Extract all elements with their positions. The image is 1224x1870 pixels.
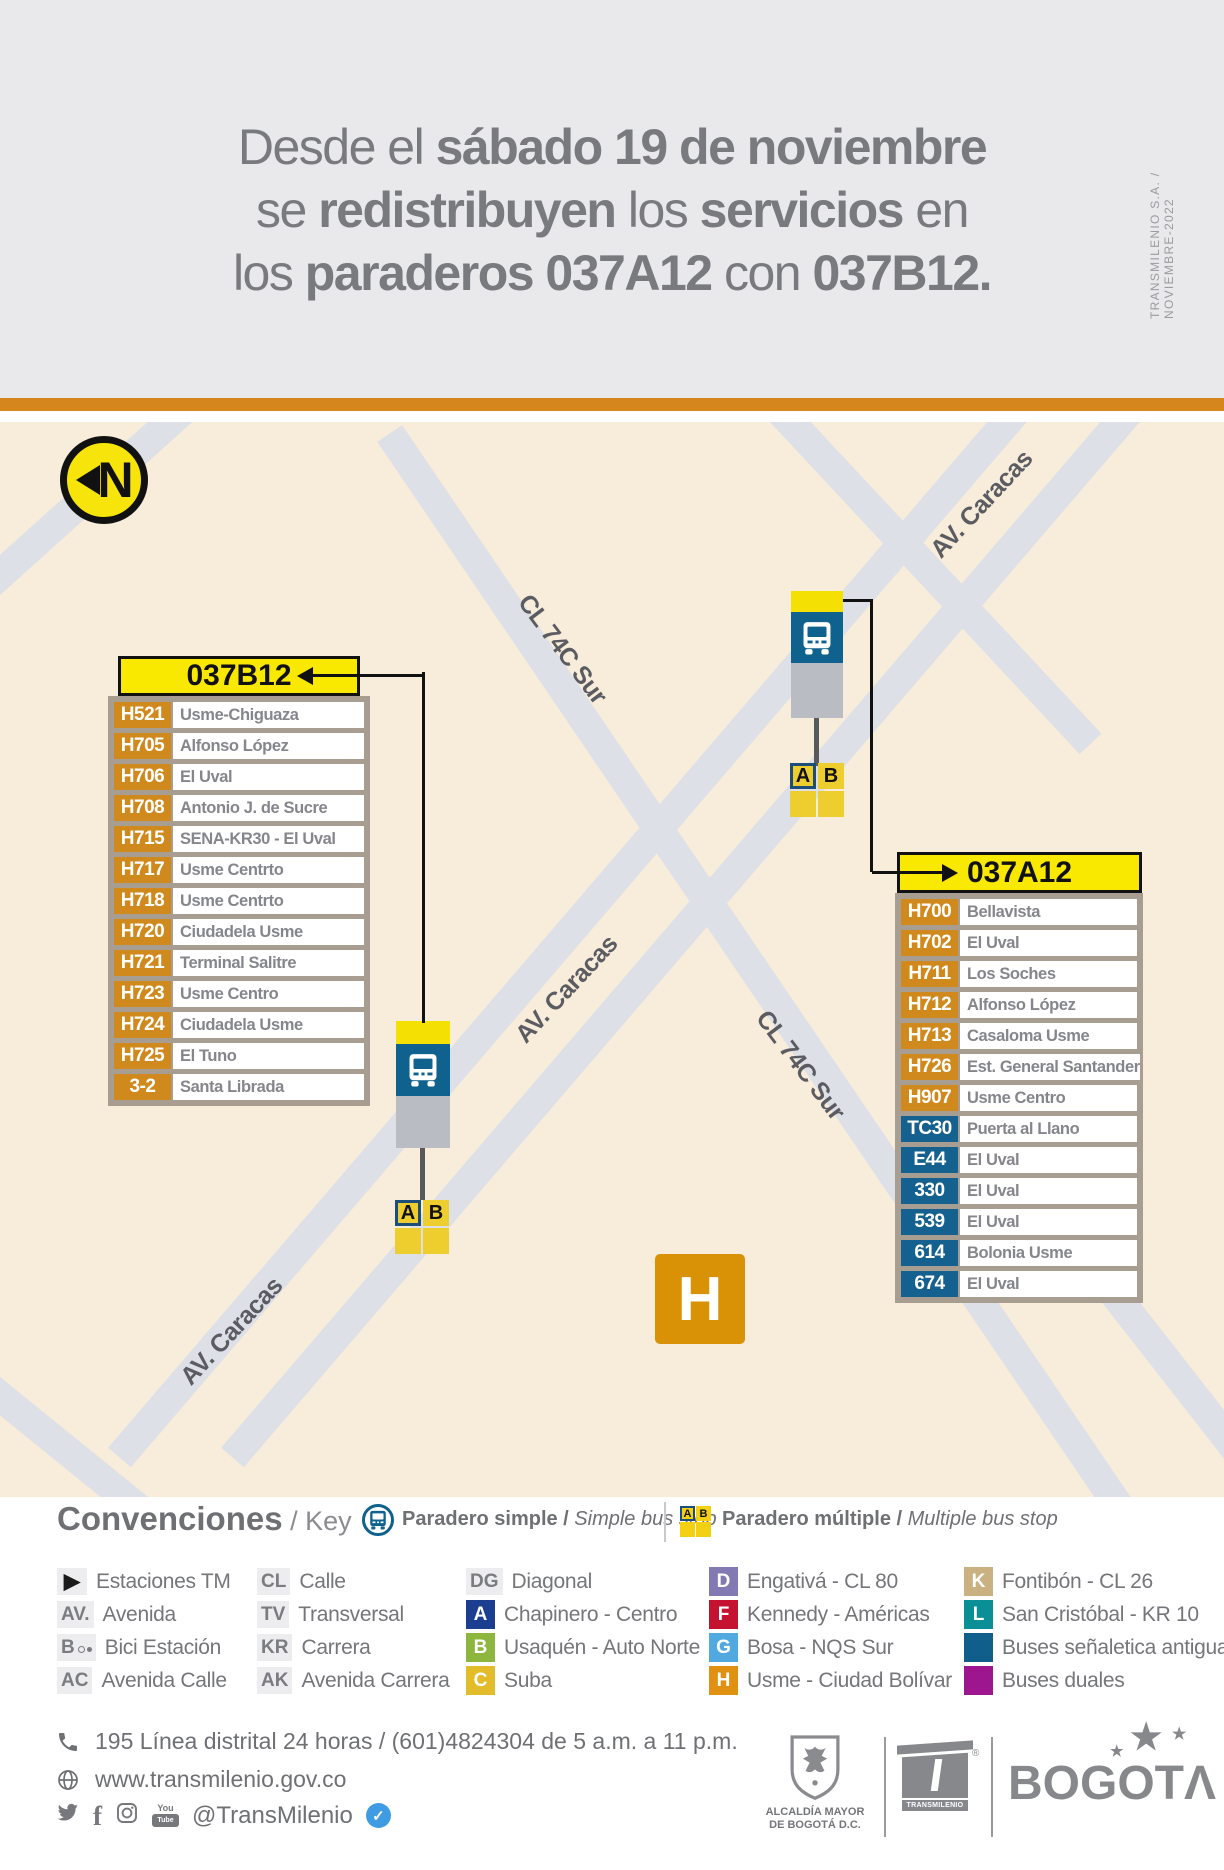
route-row: H702 El Uval bbox=[901, 930, 1137, 956]
legend-label: Kennedy - Américas bbox=[747, 1603, 930, 1627]
route-destination: Casaloma Usme bbox=[960, 1023, 1137, 1049]
legend-chip: AK bbox=[257, 1667, 292, 1694]
legend-title-key: / Key bbox=[283, 1506, 352, 1536]
route-destination: Usme Centro bbox=[960, 1085, 1137, 1111]
legend-item: ▶ Estaciones TM bbox=[57, 1565, 231, 1598]
route-row: H725 El Tuno bbox=[114, 1043, 364, 1069]
website-row: www.transmilenio.gov.co bbox=[55, 1766, 346, 1793]
legend-chip bbox=[964, 1666, 993, 1695]
legend-chip bbox=[964, 1633, 993, 1662]
connector-line bbox=[422, 672, 425, 1023]
mini-cell bbox=[680, 1522, 695, 1537]
caption-bold: Paradero múltiple / bbox=[722, 1508, 908, 1530]
route-code-badge: H706 bbox=[114, 764, 171, 790]
legend-item: C Suba bbox=[466, 1664, 700, 1697]
legend-label: Engativá - CL 80 bbox=[747, 1570, 898, 1594]
legend-label: Estaciones TM bbox=[96, 1570, 231, 1594]
platform-b-cell: B bbox=[423, 1200, 449, 1226]
route-code-badge: H712 bbox=[901, 992, 958, 1018]
route-code-badge: 614 bbox=[901, 1240, 958, 1266]
legend-label: Avenida bbox=[103, 1603, 176, 1627]
route-row: 674 El Uval bbox=[901, 1271, 1137, 1297]
route-destination: Santa Librada bbox=[173, 1074, 364, 1100]
legend-divider bbox=[664, 1502, 666, 1542]
legend-label: Chapinero - Centro bbox=[504, 1603, 677, 1627]
stop-a-base bbox=[791, 663, 843, 718]
route-row: E44 El Uval bbox=[901, 1147, 1137, 1173]
route-destination: El Uval bbox=[960, 1271, 1137, 1297]
legend-label: Avenida Calle bbox=[101, 1669, 226, 1693]
table-header-037B12: 037B12 bbox=[118, 656, 360, 696]
platform-cell bbox=[423, 1228, 449, 1254]
route-row: H717 Usme Centrto bbox=[114, 857, 364, 883]
mini-cell bbox=[696, 1522, 711, 1537]
route-row: H711 Los Soches bbox=[901, 961, 1137, 987]
legend-chip: K bbox=[964, 1567, 993, 1596]
title-text-bold: servicios bbox=[700, 182, 903, 238]
mini-b-cell: B bbox=[696, 1506, 711, 1521]
mini-a-cell: A bbox=[680, 1506, 695, 1521]
social-handle[interactable]: @TransMilenio bbox=[192, 1802, 353, 1830]
divider-bar bbox=[0, 398, 1224, 411]
legend-column-5: K Fontibón - CL 26 L San Cristóbal - KR … bbox=[964, 1565, 1224, 1697]
route-row: H907 Usme Centro bbox=[901, 1085, 1137, 1111]
legend-chip: H bbox=[709, 1666, 738, 1695]
tm-slash-shape bbox=[931, 1759, 942, 1791]
edition-note: TRANSMILENIO S.A. / NOVIEMBRE-2022 bbox=[1148, 104, 1176, 319]
route-code-badge: H720 bbox=[114, 919, 171, 945]
logo-divider bbox=[884, 1737, 886, 1837]
route-code-badge: H723 bbox=[114, 981, 171, 1007]
legend-item: B Bici Estación bbox=[57, 1631, 231, 1664]
website-text[interactable]: www.transmilenio.gov.co bbox=[95, 1766, 346, 1793]
legend-item: F Kennedy - Américas bbox=[709, 1598, 952, 1631]
route-row: H706 El Uval bbox=[114, 764, 364, 790]
legend-label: Bici Estación bbox=[105, 1636, 221, 1660]
legend-item: AV. Avenida bbox=[57, 1598, 231, 1631]
legend-chip: AC bbox=[57, 1667, 92, 1694]
route-table-037A12: H700 Bellavista H702 El Uval H711 Los So… bbox=[895, 893, 1143, 1303]
legend-item: AK Avenida Carrera bbox=[257, 1664, 449, 1697]
stop-b-pole bbox=[420, 1148, 425, 1200]
route-code-badge: 3-2 bbox=[114, 1074, 171, 1100]
table-header-037A12: 037A12 bbox=[897, 852, 1142, 893]
arrow-left-icon bbox=[297, 667, 313, 685]
legend-item: L San Cristóbal - KR 10 bbox=[964, 1598, 1224, 1631]
title-text: Desde el bbox=[238, 119, 436, 175]
route-code-badge: H713 bbox=[901, 1023, 958, 1049]
tm-logo-text: TRANSMILENIO bbox=[902, 1798, 968, 1809]
connector-line bbox=[870, 599, 873, 872]
legend-label: Avenida Carrera bbox=[301, 1669, 449, 1693]
north-letter: N bbox=[97, 451, 131, 509]
title-text: en bbox=[903, 182, 968, 238]
legend-label: Bosa - NQS Sur bbox=[747, 1636, 893, 1660]
legend-label: Usaquén - Auto Norte bbox=[504, 1636, 700, 1660]
legend-label: Suba bbox=[504, 1669, 552, 1693]
route-destination: Ciudadela Usme bbox=[173, 1012, 364, 1038]
route-code-badge: H521 bbox=[114, 702, 171, 728]
route-row: H720 Ciudadela Usme bbox=[114, 919, 364, 945]
arrow-right-icon bbox=[942, 864, 958, 882]
legend-item: G Bosa - NQS Sur bbox=[709, 1631, 952, 1664]
legend-label: San Cristóbal - KR 10 bbox=[1002, 1603, 1199, 1627]
route-destination: Terminal Salitre bbox=[173, 950, 364, 976]
route-code-badge: H726 bbox=[901, 1054, 958, 1080]
route-row: H712 Alfonso López bbox=[901, 992, 1137, 1018]
alcaldia-crest-logo bbox=[788, 1733, 842, 1803]
route-destination: El Uval bbox=[960, 930, 1137, 956]
map-area: CL 74C Sur CL 74C Sur AV. Caracas AV. Ca… bbox=[0, 411, 1224, 1497]
facebook-icon[interactable]: f bbox=[93, 1805, 102, 1827]
legend-label: Diagonal bbox=[512, 1570, 593, 1594]
legend-chip: D bbox=[709, 1567, 738, 1596]
route-row: 614 Bolonia Usme bbox=[901, 1240, 1137, 1266]
platform-a-cell: A bbox=[790, 763, 816, 789]
route-row: H708 Antonio J. de Sucre bbox=[114, 795, 364, 821]
social-row: f YouTube @TransMilenio ✓ bbox=[55, 1800, 391, 1831]
legend-chip: DG bbox=[466, 1568, 503, 1595]
title-text: los bbox=[233, 245, 305, 301]
phone-row: 195 Línea distrital 24 horas / (601)4824… bbox=[55, 1728, 738, 1755]
connector-line bbox=[843, 599, 872, 602]
youtube-icon[interactable]: YouTube bbox=[152, 1804, 179, 1827]
title-text-bold: redistribuyen bbox=[318, 182, 615, 238]
legend-item: AC Avenida Calle bbox=[57, 1664, 231, 1697]
route-code-badge: H715 bbox=[114, 826, 171, 852]
route-destination: El Tuno bbox=[173, 1043, 364, 1069]
legend-item: TV Transversal bbox=[257, 1598, 449, 1631]
route-destination: Usme Centrto bbox=[173, 857, 364, 883]
route-row: H724 Ciudadela Usme bbox=[114, 1012, 364, 1038]
legend-chip: L bbox=[964, 1600, 993, 1629]
bus-front-icon bbox=[367, 1509, 389, 1531]
route-destination: El Uval bbox=[960, 1209, 1137, 1235]
legend-title: Convenciones / Key bbox=[57, 1500, 352, 1538]
route-row: H715 SENA-KR30 - El Uval bbox=[114, 826, 364, 852]
legend-item: KR Carrera bbox=[257, 1631, 449, 1664]
platform-cell bbox=[818, 791, 844, 817]
platform-cell bbox=[395, 1228, 421, 1254]
route-row: TC30 Puerta al Llano bbox=[901, 1116, 1137, 1142]
route-destination: SENA-KR30 - El Uval bbox=[173, 826, 364, 852]
legend-label: Transversal bbox=[298, 1603, 404, 1627]
simple-stop-caption: Paradero simple / Simple bus stop bbox=[402, 1508, 717, 1531]
route-destination: Antonio J. de Sucre bbox=[173, 795, 364, 821]
route-code-badge: H721 bbox=[114, 950, 171, 976]
route-destination: Puerta al Llano bbox=[960, 1116, 1137, 1142]
route-code-badge: H708 bbox=[114, 795, 171, 821]
route-code-badge: 330 bbox=[901, 1178, 958, 1204]
title-text: con bbox=[712, 245, 813, 301]
legend-label: Usme - Ciudad Bolívar bbox=[747, 1669, 952, 1693]
bogota-lambda: Λ bbox=[1184, 1757, 1216, 1810]
globe-icon bbox=[55, 1768, 81, 1792]
route-destination: Alfonso López bbox=[173, 733, 364, 759]
route-table-037B12: H521 Usme-Chiguaza H705 Alfonso López H7… bbox=[108, 696, 370, 1106]
multiple-stop-caption: Paradero múltiple / Multiple bus stop bbox=[722, 1508, 1058, 1531]
route-row: H721 Terminal Salitre bbox=[114, 950, 364, 976]
bus-front-icon bbox=[798, 619, 836, 657]
legend-label: Fontibón - CL 26 bbox=[1002, 1570, 1153, 1594]
route-destination: Usme Centrto bbox=[173, 888, 364, 914]
platform-cell bbox=[790, 791, 816, 817]
route-row: H726 Est. General Santander bbox=[901, 1054, 1137, 1080]
instagram-icon[interactable] bbox=[115, 1801, 139, 1831]
legend-title-text: Convenciones bbox=[57, 1500, 283, 1537]
legend-label: Buses duales bbox=[1002, 1669, 1124, 1693]
phone-icon bbox=[55, 1730, 81, 1754]
legend-label: Calle bbox=[299, 1570, 345, 1594]
arrow-tail bbox=[313, 674, 422, 677]
bus-front-icon bbox=[404, 1051, 442, 1089]
star-icon: ★ bbox=[1130, 1716, 1162, 1758]
stop-a-pole bbox=[814, 718, 819, 766]
route-row: 330 El Uval bbox=[901, 1178, 1137, 1204]
legend-column-2: CL Calle TV Transversal KR Carrera AK Av… bbox=[257, 1565, 449, 1697]
legend-item: B Usaquén - Auto Norte bbox=[466, 1631, 700, 1664]
multiple-stop-icon: A B bbox=[680, 1506, 711, 1537]
alcaldia-caption: ALCALDÍA MAYOR DE BOGOTÁ D.C. bbox=[740, 1806, 890, 1832]
title-line-1: Desde el sábado 19 de noviembre bbox=[0, 116, 1224, 179]
legend-item: Buses señaletica antigua bbox=[964, 1631, 1224, 1664]
route-code-badge: TC30 bbox=[901, 1116, 958, 1142]
legend-column-4: D Engativá - CL 80 F Kennedy - Américas … bbox=[709, 1565, 952, 1697]
alcaldia-line-2: DE BOGOTÁ D.C. bbox=[740, 1819, 890, 1832]
route-code-badge: H718 bbox=[114, 888, 171, 914]
caption-italic: Multiple bus stop bbox=[908, 1508, 1058, 1530]
title-text-bold: 037B12. bbox=[812, 245, 991, 301]
legend-item: D Engativá - CL 80 bbox=[709, 1565, 952, 1598]
bogota-wordmark: BOGOTΛ ★ ★ ★ bbox=[1008, 1756, 1218, 1811]
legend-chip: F bbox=[709, 1600, 738, 1629]
stop-b-bus-icon bbox=[396, 1044, 450, 1096]
stop-a-yellow-strip bbox=[791, 591, 843, 612]
legend-label: Buses señaletica antigua bbox=[1002, 1636, 1224, 1660]
route-row: 3-2 Santa Librada bbox=[114, 1074, 364, 1100]
legend-chip: B bbox=[466, 1633, 495, 1662]
star-icon: ★ bbox=[1172, 1724, 1186, 1744]
route-destination: Usme Centro bbox=[173, 981, 364, 1007]
route-destination: El Uval bbox=[960, 1147, 1137, 1173]
legend-chip: ▶ bbox=[57, 1568, 87, 1595]
route-row: 539 El Uval bbox=[901, 1209, 1137, 1235]
zone-h-marker: H bbox=[655, 1254, 745, 1344]
route-row: H713 Casaloma Usme bbox=[901, 1023, 1137, 1049]
legend-chip: CL bbox=[257, 1568, 290, 1595]
route-destination: Alfonso López bbox=[960, 992, 1137, 1018]
route-row: H705 Alfonso López bbox=[114, 733, 364, 759]
title-line-2: se redistribuyen los servicios en bbox=[0, 179, 1224, 242]
route-row: H723 Usme Centro bbox=[114, 981, 364, 1007]
route-code-badge: H711 bbox=[901, 961, 958, 987]
route-code-badge: H717 bbox=[114, 857, 171, 883]
legend-item: DG Diagonal bbox=[466, 1565, 700, 1598]
platform-a-cell: A bbox=[395, 1200, 421, 1226]
legend-item: CL Calle bbox=[257, 1565, 449, 1598]
route-code-badge: H907 bbox=[901, 1085, 958, 1111]
title-text-bold: paraderos 037A12 bbox=[305, 245, 712, 301]
route-destination: Ciudadela Usme bbox=[173, 919, 364, 945]
title-text-bold: sábado 19 de noviembre bbox=[436, 119, 987, 175]
route-destination: Los Soches bbox=[960, 961, 1137, 987]
poster-title: Desde el sábado 19 de noviembre se redis… bbox=[0, 116, 1224, 305]
legend-chip: AV. bbox=[57, 1601, 94, 1628]
stop-b-yellow-strip bbox=[396, 1021, 450, 1044]
legend-item: H Usme - Ciudad Bolívar bbox=[709, 1664, 952, 1697]
logo-divider bbox=[991, 1737, 993, 1837]
legend-chip: TV bbox=[257, 1601, 289, 1628]
legend-column-1: ▶ Estaciones TM AV. Avenida B Bici Estac… bbox=[57, 1565, 231, 1697]
legend-chip: B bbox=[57, 1634, 96, 1661]
alcaldia-line-1: ALCALDÍA MAYOR bbox=[740, 1806, 890, 1819]
route-code-badge: H700 bbox=[901, 899, 958, 925]
stop-a-bus-icon bbox=[791, 612, 843, 663]
legend-chip: KR bbox=[257, 1634, 292, 1661]
route-destination: Est. General Santander bbox=[960, 1054, 1140, 1080]
caption-bold: Paradero simple / bbox=[402, 1508, 574, 1530]
title-text: los bbox=[615, 182, 699, 238]
route-row: H718 Usme Centrto bbox=[114, 888, 364, 914]
arrow-tail bbox=[872, 871, 942, 874]
verified-badge-icon: ✓ bbox=[366, 1803, 391, 1828]
header-banner: Desde el sábado 19 de noviembre se redis… bbox=[0, 0, 1224, 398]
north-indicator: N bbox=[60, 436, 148, 524]
route-destination: El Uval bbox=[960, 1178, 1137, 1204]
route-code-badge: 674 bbox=[901, 1271, 958, 1297]
legend-label: Carrera bbox=[301, 1636, 370, 1660]
bogota-text: BOGOT bbox=[1008, 1757, 1184, 1810]
registered-mark: ® bbox=[972, 1748, 979, 1759]
tm-flag-shape bbox=[897, 1740, 973, 1757]
street-label-cl74c-right: CL 74C Sur bbox=[734, 985, 865, 1146]
legend-chip: C bbox=[466, 1666, 495, 1695]
route-destination: Bolonia Usme bbox=[960, 1240, 1137, 1266]
legend-column-3: DG Diagonal A Chapinero - Centro B Usaqu… bbox=[466, 1565, 700, 1697]
legend-chip: G bbox=[709, 1633, 738, 1662]
poster-root: Desde el sábado 19 de noviembre se redis… bbox=[0, 0, 1224, 1870]
route-destination: El Uval bbox=[173, 764, 364, 790]
route-row: H700 Bellavista bbox=[901, 899, 1137, 925]
title-text: se bbox=[256, 182, 318, 238]
route-destination: Usme-Chiguaza bbox=[173, 702, 364, 728]
legend-item: A Chapinero - Centro bbox=[466, 1598, 700, 1631]
legend-item: Buses duales bbox=[964, 1664, 1224, 1697]
stop-b-ab-marker: A B bbox=[395, 1200, 449, 1254]
route-destination: Bellavista bbox=[960, 899, 1137, 925]
stop-b-base bbox=[396, 1096, 450, 1148]
route-code-badge: H702 bbox=[901, 930, 958, 956]
route-code-badge: 539 bbox=[901, 1209, 958, 1235]
route-code-badge: E44 bbox=[901, 1147, 958, 1173]
route-code-badge: H724 bbox=[114, 1012, 171, 1038]
platform-b-cell: B bbox=[818, 763, 844, 789]
star-icon: ★ bbox=[1110, 1742, 1123, 1760]
route-code-badge: H705 bbox=[114, 733, 171, 759]
legend-chip: A bbox=[466, 1600, 495, 1629]
twitter-icon[interactable] bbox=[55, 1800, 80, 1831]
route-row: H521 Usme-Chiguaza bbox=[114, 702, 364, 728]
phone-text: 195 Línea distrital 24 horas / (601)4824… bbox=[95, 1728, 738, 1755]
title-line-3: los paraderos 037A12 con 037B12. bbox=[0, 242, 1224, 305]
legend-item: K Fontibón - CL 26 bbox=[964, 1565, 1224, 1598]
stop-a-ab-marker: A B bbox=[790, 763, 844, 817]
transmilenio-logo: TRANSMILENIO bbox=[902, 1753, 968, 1811]
simple-stop-icon bbox=[362, 1504, 394, 1536]
route-code-badge: H725 bbox=[114, 1043, 171, 1069]
